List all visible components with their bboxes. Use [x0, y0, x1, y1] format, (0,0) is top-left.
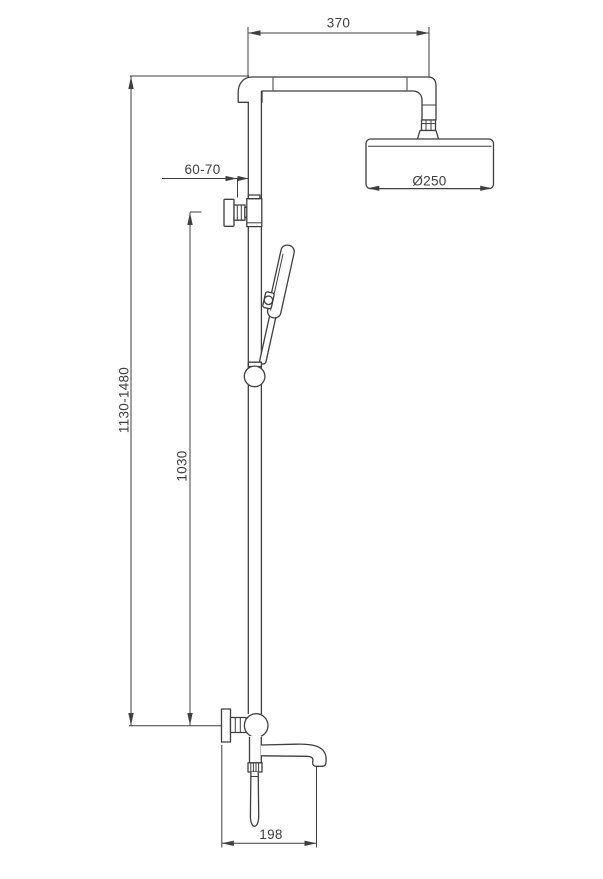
dim-wall-distance-label: 60-70	[184, 162, 220, 177]
dim-spout-reach-label: 198	[259, 827, 282, 842]
connector-nut	[422, 120, 436, 131]
arrow-right-icon	[226, 176, 238, 181]
connector-cone	[417, 131, 438, 140]
shower-arm	[238, 77, 436, 120]
arrow-down-icon	[128, 713, 133, 726]
slider-knob	[244, 362, 265, 387]
wall-plate	[224, 199, 234, 226]
wall-bracket	[224, 195, 262, 227]
dim-head-diameter-label: Ø250	[412, 173, 446, 188]
tub-spout	[261, 744, 326, 766]
valve-nut	[231, 718, 247, 733]
slider-ball	[244, 366, 265, 387]
arrow-right-icon	[305, 841, 317, 846]
arrow-left-icon	[248, 30, 261, 35]
dim-slide-bar-height-label: 1030	[175, 450, 190, 481]
dim-arm-length-label: 370	[327, 16, 350, 31]
arrow-right-icon	[417, 30, 430, 35]
dim-overall-height-label: 1130-1480	[117, 367, 132, 433]
arrow-down-icon	[187, 713, 192, 726]
arrow-right-icon	[238, 176, 249, 181]
valve-body-ball	[244, 714, 268, 738]
lever-handle	[248, 763, 262, 827]
arrow-up-icon	[187, 213, 192, 226]
valve-wall-flange	[222, 709, 231, 742]
arrow-up-icon	[128, 77, 133, 90]
dim-wall-distance: 60-70	[162, 162, 249, 198]
arrow-left-icon	[222, 841, 234, 846]
dim-slide-bar-height: 1030	[175, 212, 202, 726]
technical-drawing-canvas: 370 1130-1480 1030 60-70 198	[0, 0, 603, 879]
bracket-nut	[234, 205, 245, 220]
clamp-cap	[248, 195, 260, 199]
riser-pipe	[248, 91, 261, 714]
dim-overall-height: 1130-1480	[117, 76, 250, 726]
head-connector	[417, 120, 438, 139]
dim-spout-reach: 198	[222, 745, 317, 848]
handle-collar-nut	[248, 763, 262, 772]
shower-system-drawing: 370 1130-1480 1030 60-70 198	[0, 0, 603, 879]
